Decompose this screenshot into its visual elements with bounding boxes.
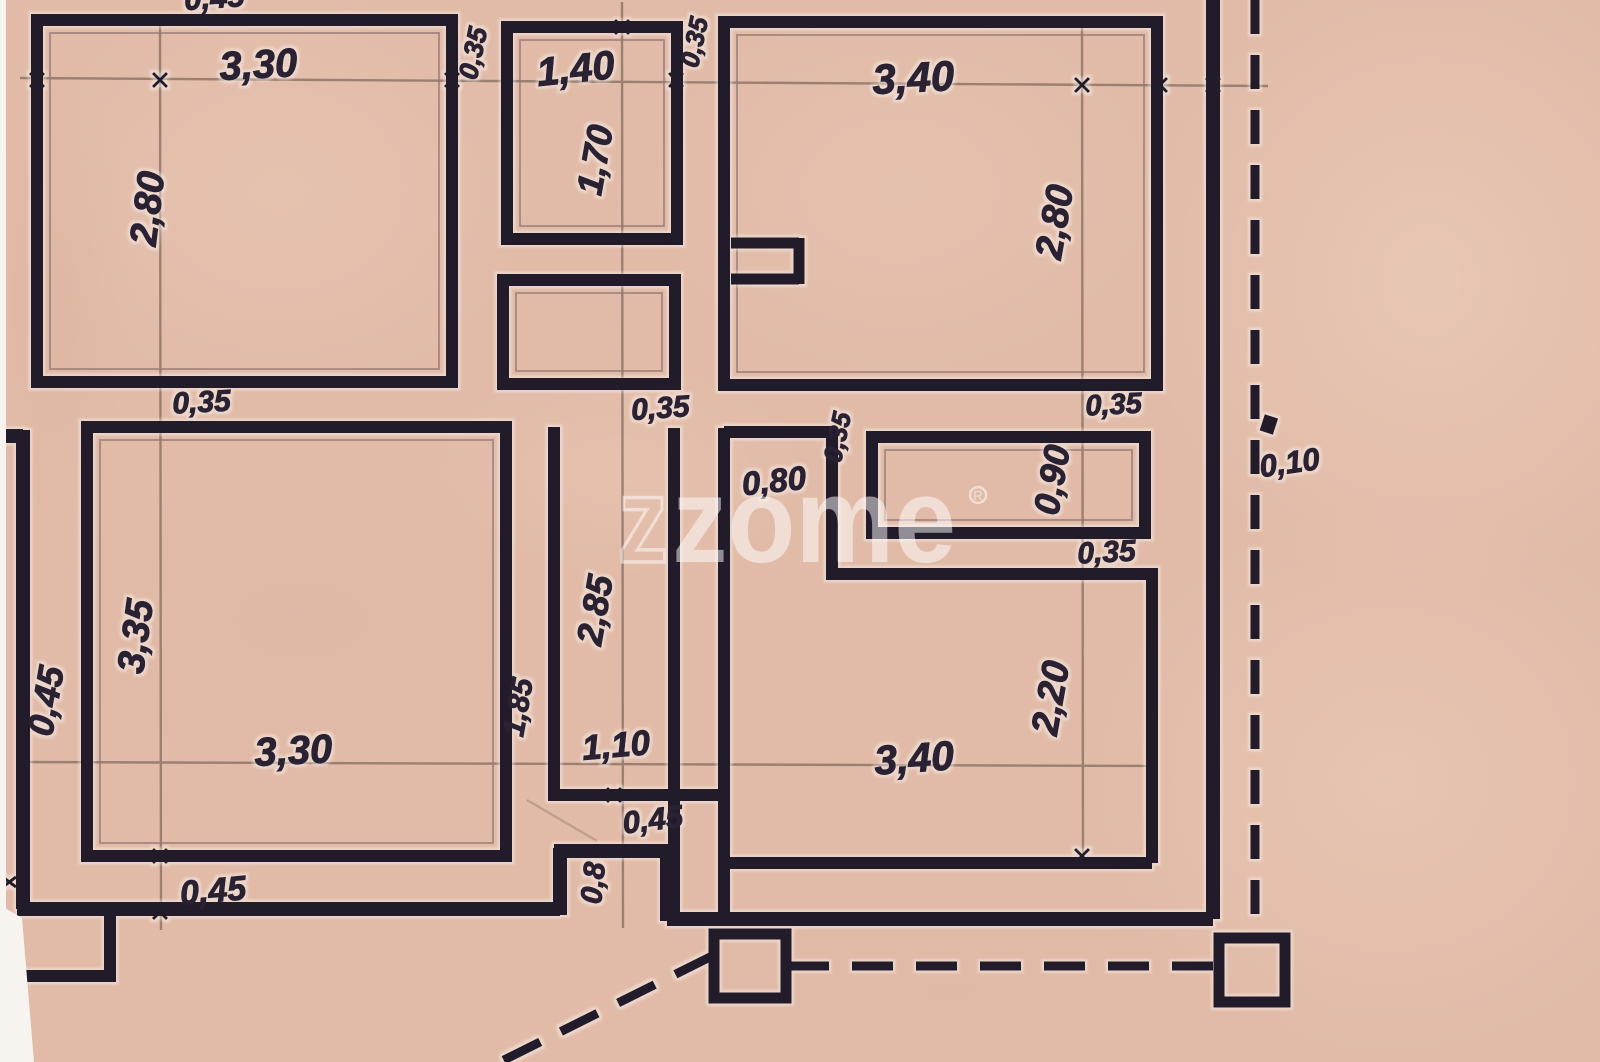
svg-text:0,35: 0,35 bbox=[1076, 534, 1137, 570]
svg-text:3,40: 3,40 bbox=[873, 732, 956, 783]
svg-text:0,45: 0,45 bbox=[621, 798, 686, 840]
svg-text:3,30: 3,30 bbox=[218, 41, 298, 89]
svg-text:0,35: 0,35 bbox=[171, 384, 232, 420]
svg-text:0,35: 0,35 bbox=[630, 390, 692, 427]
svg-text:0,35: 0,35 bbox=[1085, 388, 1144, 423]
svg-text:1,40: 1,40 bbox=[535, 43, 617, 95]
svg-text:0,8: 0,8 bbox=[575, 860, 612, 905]
svg-text:3,30: 3,30 bbox=[253, 727, 333, 775]
svg-text:z: z bbox=[618, 452, 668, 588]
svg-text:0,45: 0,45 bbox=[178, 869, 248, 913]
svg-text:1,10: 1,10 bbox=[580, 723, 652, 768]
svg-text:3,40: 3,40 bbox=[871, 52, 955, 103]
svg-text:zome: zome bbox=[672, 452, 956, 588]
svg-text:R: R bbox=[973, 488, 982, 503]
